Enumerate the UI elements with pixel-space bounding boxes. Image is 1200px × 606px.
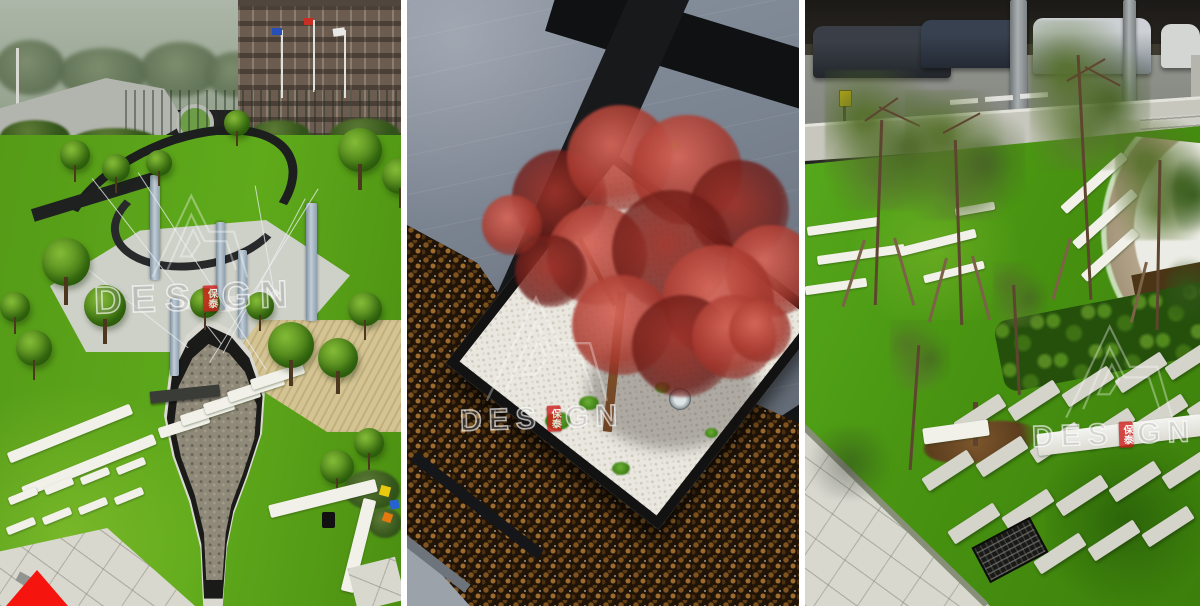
tree (102, 154, 130, 182)
tree (84, 285, 126, 327)
steel-mast (238, 250, 247, 338)
panel-left-aerial-garden: DES 保泰 GN (0, 0, 401, 606)
flagpole (344, 30, 346, 98)
weed-patch (579, 396, 599, 410)
tree (42, 238, 90, 286)
flagpole (313, 20, 315, 92)
steel-mast (306, 203, 317, 321)
panel-right-lawn-parking: DES 保泰 GN (805, 0, 1200, 606)
weed-patch (612, 462, 630, 475)
photo-collage: DES 保泰 GN (0, 0, 1200, 606)
red-flag (304, 18, 313, 25)
maple-canopy (482, 195, 542, 255)
tree (190, 288, 220, 318)
trash-bin (322, 512, 335, 528)
flagpole (281, 30, 283, 98)
sapling-canopy (993, 262, 1048, 327)
banner-flag (389, 499, 399, 509)
tree (224, 110, 250, 136)
building-roofline (238, 0, 401, 6)
tree (246, 292, 274, 320)
tree (60, 140, 90, 170)
dark-blue-car (921, 20, 1023, 68)
tree (0, 292, 30, 322)
tree (338, 128, 382, 172)
white-flag (333, 27, 346, 37)
sapling-canopy (890, 320, 950, 390)
tree (348, 292, 382, 326)
panel-middle-maple-planter: DES 保泰 GN (407, 0, 799, 606)
tree-canopy (905, 90, 1025, 220)
weed-patch (545, 412, 571, 430)
maple-canopy (729, 300, 791, 362)
foliage-shadow (805, 428, 895, 498)
tree (354, 428, 384, 458)
tree (318, 338, 358, 378)
tree (146, 150, 172, 176)
blue-flag (272, 28, 282, 35)
weed-patch (705, 428, 718, 438)
tree (268, 322, 314, 368)
tree (16, 330, 52, 366)
